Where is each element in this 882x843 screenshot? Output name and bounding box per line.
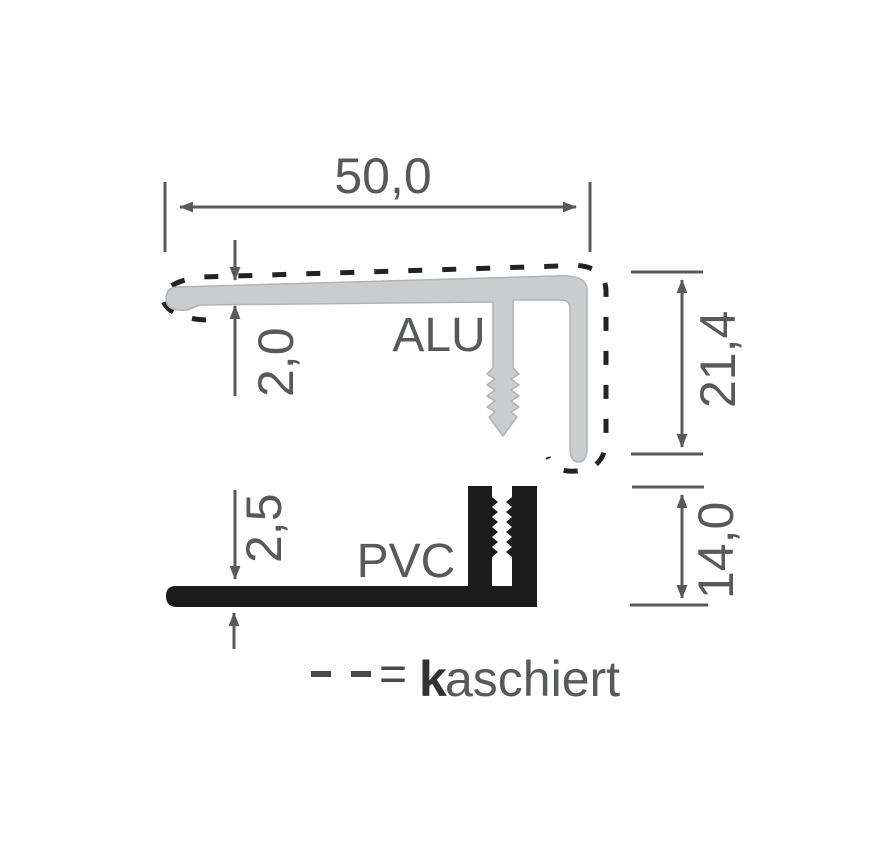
dimension-label-pvc-height: 14,0 (688, 502, 744, 599)
dimension-alu-height: 21,4 (631, 272, 746, 454)
profile-diagram: 50,0 2,0 ALU 21,4 2,5 PVC (0, 0, 882, 843)
dimension-top-width: 50,0 (165, 148, 590, 252)
pvc-label: PVC (357, 535, 456, 588)
legend-term-bold: k (419, 651, 447, 707)
alu-label: ALU (392, 309, 485, 362)
legend-term-rest: aschiert (445, 651, 620, 707)
alu-profile-shape (166, 276, 587, 462)
dimension-label-alu-thickness: 2,0 (248, 327, 304, 397)
legend-equals-sign: = (379, 648, 407, 701)
dimension-label-top-width: 50,0 (334, 148, 431, 204)
pvc-profile-shape (166, 486, 537, 607)
legend-kaschiert: = k aschiert (311, 648, 620, 707)
dimension-alu-thickness: 2,0 (235, 240, 304, 397)
dimension-pvc-thickness: 2,5 (234, 490, 292, 649)
dimension-pvc-height: 14,0 (630, 487, 744, 605)
dimension-label-alu-height: 21,4 (690, 311, 746, 408)
profile-drawing-canvas: 50,0 2,0 ALU 21,4 2,5 PVC (0, 0, 882, 843)
dimension-label-pvc-thickness: 2,5 (236, 493, 292, 563)
